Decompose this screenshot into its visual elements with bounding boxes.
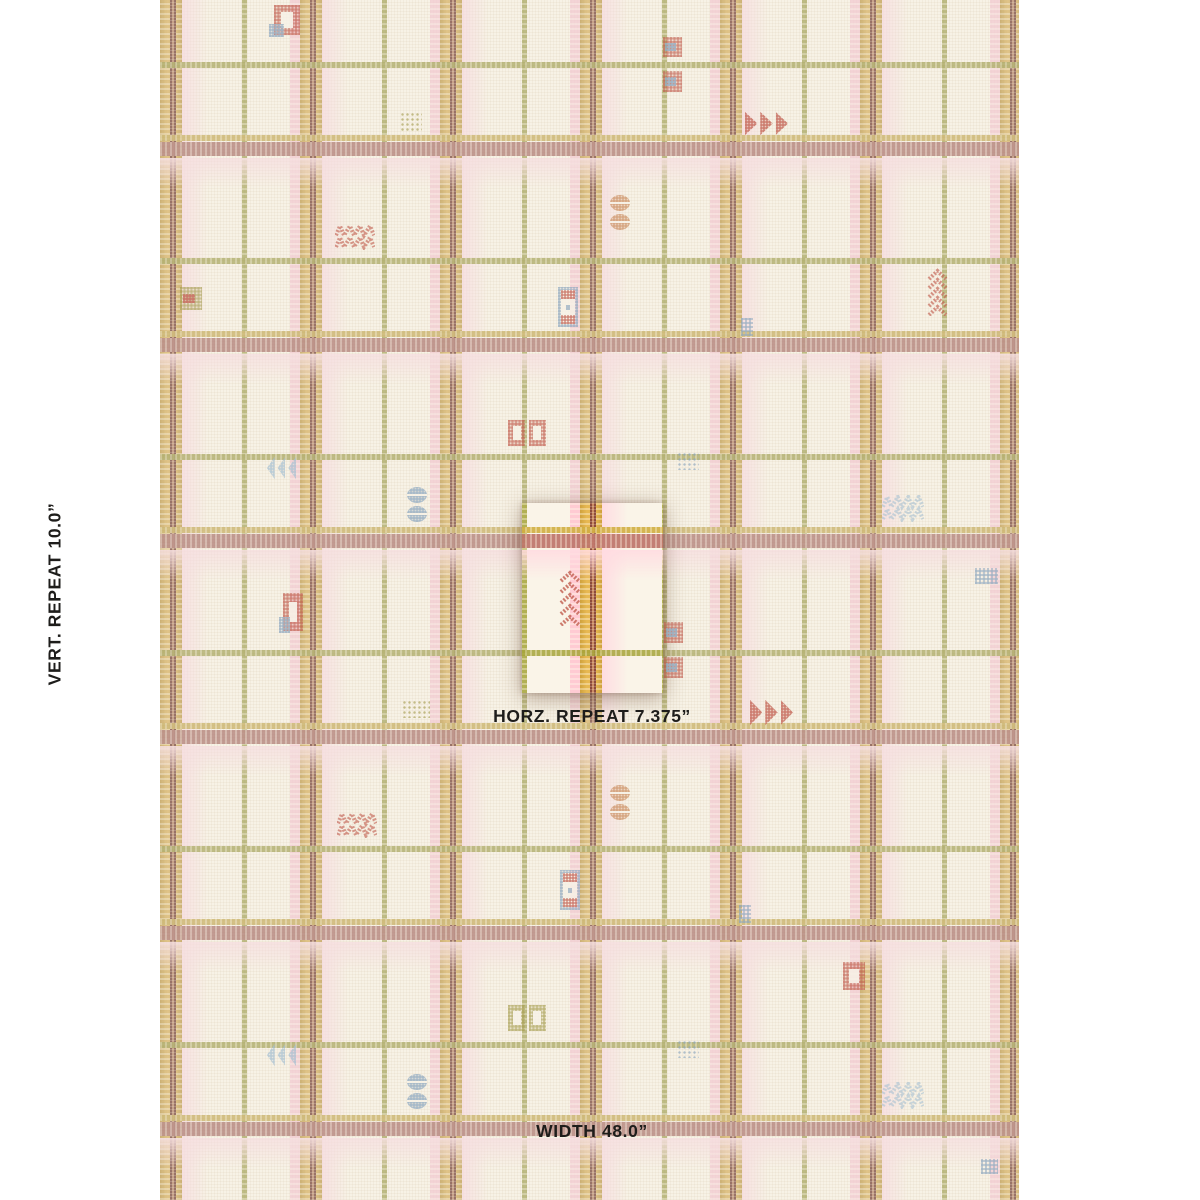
motif-tree (559, 570, 581, 626)
repeat-highlight-box (522, 503, 663, 693)
stripe-horizontal-pink-wash (160, 746, 1019, 776)
fabric-swatch (160, 0, 1019, 1200)
motif-gingham (664, 622, 683, 643)
stripe-horizontal-mauve (160, 142, 1019, 156)
vert-repeat-value: 10.0” (45, 503, 65, 549)
motif-dotchecker (739, 905, 751, 923)
stripe-horizontal-olive (160, 62, 1019, 68)
stripe-horizontal-pink-wash (160, 354, 1019, 384)
stripe-horizontal-goldline (160, 919, 1019, 925)
motif-twosquares (508, 420, 546, 446)
motif-dotchecker (741, 318, 753, 336)
motif-dotchecker (975, 568, 998, 584)
fabric-product-image: VERT. REPEAT 10.0” HORZ. REPEAT 7.375” W… (0, 0, 1200, 1200)
motif-dotgrid (400, 112, 422, 132)
vert-repeat-label: VERT. REPEAT 10.0” (45, 503, 66, 686)
motif-zigzag (335, 224, 375, 250)
stripe-horizontal-mauve (160, 338, 1019, 352)
horz-repeat-label: HORZ. REPEAT 7.375” (493, 706, 691, 727)
motif-dotgrid (677, 452, 699, 470)
motif-frame (274, 5, 300, 35)
motif-dotgrid (677, 1040, 699, 1058)
horz-repeat-text: HORZ. REPEAT (493, 706, 629, 726)
motif-zigzag (882, 1082, 924, 1109)
width-label: WIDTH 48.0” (536, 1121, 648, 1142)
motif-dotchecker (981, 1159, 998, 1174)
motif-arrows-left (267, 1044, 299, 1066)
motif-circles (407, 487, 427, 522)
stripe-horizontal-mauve (160, 730, 1019, 744)
motif-frame (843, 962, 865, 990)
stripe-horizontal-mauve (522, 534, 663, 548)
stripe-horizontal-olive (160, 258, 1019, 264)
stripe-horizontal-pink-wash (160, 942, 1019, 972)
motif-gingham (663, 71, 682, 92)
horz-repeat-value: 7.375” (635, 706, 691, 726)
stripe-horizontal-goldline (160, 135, 1019, 141)
motif-window (558, 287, 578, 327)
motif-gingham (664, 657, 683, 678)
stripe-horizontal-pink-wash (160, 1138, 1019, 1168)
motif-gingham (663, 37, 682, 57)
stripe-horizontal-mauve (160, 926, 1019, 940)
motif-circles (407, 1074, 427, 1109)
stripe-horizontal-goldline (160, 331, 1019, 337)
motif-gingham (180, 287, 202, 310)
motif-arrows-left (267, 457, 299, 479)
motif-dotgrid (402, 700, 430, 718)
stripe-horizontal-olive (522, 650, 663, 656)
motif-zigzag (882, 495, 924, 522)
motif-circles (610, 195, 630, 230)
stripe-horizontal-pink-wash (160, 158, 1019, 188)
stripe-horizontal-olive (160, 846, 1019, 852)
motif-circles (610, 785, 630, 820)
motif-zigzag (337, 812, 377, 838)
stripe-horizontal-goldline (522, 527, 663, 533)
width-value: 48.0” (602, 1121, 648, 1141)
motif-tree (927, 268, 948, 316)
motif-frame (283, 593, 303, 631)
repeat-highlight-pattern (522, 503, 663, 693)
motif-arrows-right (750, 700, 796, 725)
motif-window (560, 870, 580, 910)
width-text: WIDTH (536, 1121, 596, 1141)
stripe-horizontal-pink-wash (522, 550, 663, 580)
motif-twosquares (508, 1005, 546, 1031)
motif-arrows-right (745, 112, 791, 135)
vert-repeat-text: VERT. REPEAT (45, 554, 65, 685)
